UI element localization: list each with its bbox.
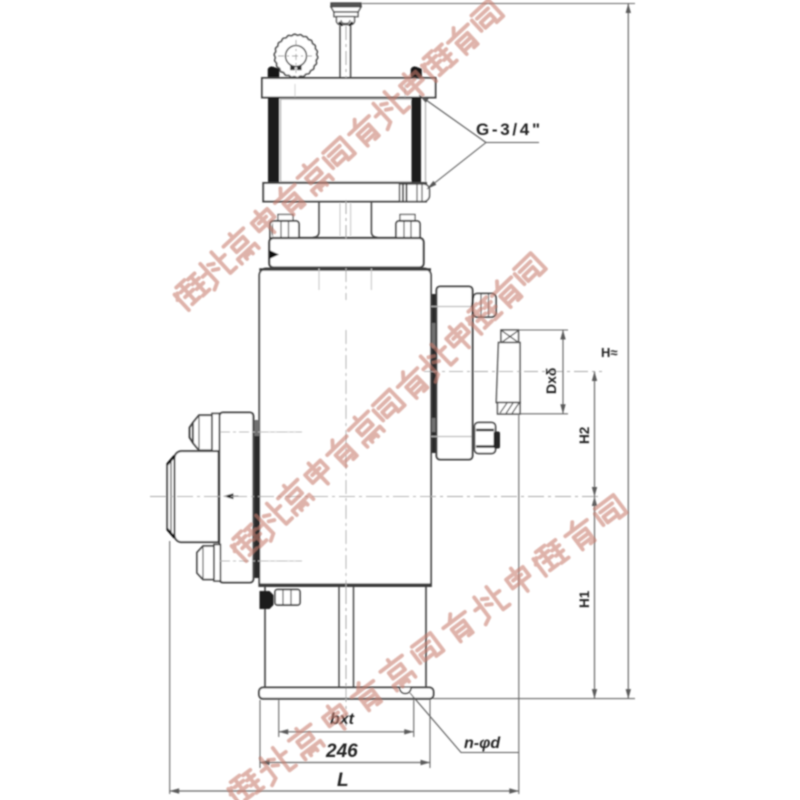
svg-text:L: L <box>337 770 349 791</box>
svg-text:n-φd: n-φd <box>464 735 501 752</box>
svg-text:Dxδ: Dxδ <box>543 368 559 394</box>
svg-text:246: 246 <box>325 741 358 762</box>
svg-text:H2: H2 <box>577 427 592 444</box>
svg-text:H1: H1 <box>577 590 592 608</box>
svg-text:G-3/4": G-3/4" <box>476 120 540 139</box>
svg-text:H≈: H≈ <box>601 345 618 360</box>
